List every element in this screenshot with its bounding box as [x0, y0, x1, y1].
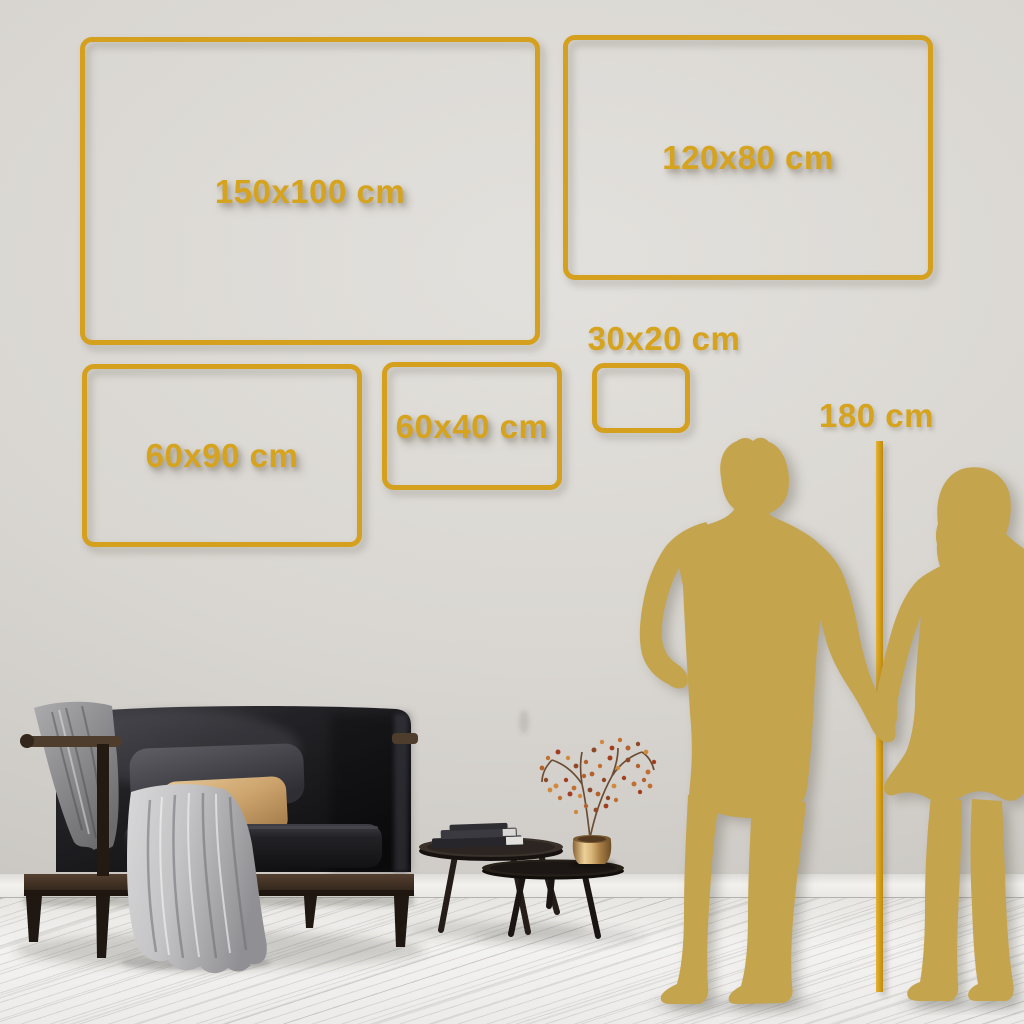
- size-frame-150x100: 150x100 cm: [80, 37, 540, 345]
- size-label-30x20: 30x20 cm: [584, 322, 744, 355]
- man-silhouette: [640, 438, 896, 1004]
- size-frame-120x80: 120x80 cm: [563, 35, 933, 280]
- size-frame-60x90: 60x90 cm: [82, 364, 362, 547]
- size-label-60x40: 60x40 cm: [396, 410, 549, 443]
- height-label-180cm: 180 cm: [814, 399, 939, 432]
- size-comparison-scene: 150x100 cm 120x80 cm 60x90 cm 60x40 cm 3…: [0, 0, 1024, 1024]
- size-label-150x100: 150x100 cm: [215, 175, 405, 208]
- size-label-120x80: 120x80 cm: [662, 141, 833, 174]
- size-frame-60x40: 60x40 cm: [382, 362, 562, 490]
- size-frame-30x20: [592, 363, 690, 433]
- size-label-60x90: 60x90 cm: [146, 439, 299, 472]
